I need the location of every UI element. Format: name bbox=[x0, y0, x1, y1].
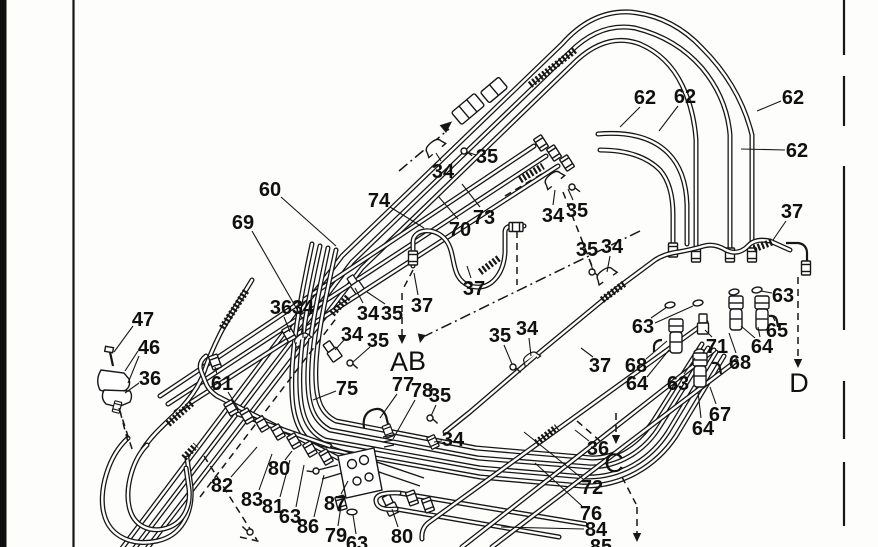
leader-line-60 bbox=[281, 197, 336, 246]
leader-line-47 bbox=[114, 326, 133, 352]
callout-47: 47 bbox=[132, 309, 154, 331]
callout-34: 34 bbox=[516, 318, 539, 340]
callout-69: 69 bbox=[232, 212, 254, 234]
callout-62: 62 bbox=[782, 87, 804, 109]
callout-68: 68 bbox=[729, 352, 751, 374]
callout-34: 34 bbox=[601, 236, 624, 258]
section-letter-C: C bbox=[604, 448, 624, 478]
callout-37: 37 bbox=[781, 201, 803, 223]
callout-34: 34 bbox=[292, 297, 315, 319]
callout-72: 72 bbox=[581, 477, 603, 499]
callout-62: 62 bbox=[786, 140, 808, 162]
parts-diagram-page: 6069747073343534356262626237363434353737… bbox=[0, 0, 878, 547]
callout-35: 35 bbox=[489, 325, 511, 347]
section-letter-D: D bbox=[789, 368, 809, 398]
callout-73: 73 bbox=[473, 207, 495, 229]
callout-70: 70 bbox=[449, 219, 471, 241]
callout-80: 80 bbox=[391, 526, 413, 547]
callout-37: 37 bbox=[411, 295, 433, 317]
callout-63: 63 bbox=[667, 373, 689, 395]
leader-line-62 bbox=[620, 107, 640, 127]
callout-83: 83 bbox=[241, 489, 263, 511]
leader-line-63 bbox=[296, 465, 304, 507]
callout-63: 63 bbox=[772, 285, 794, 307]
callout-80: 80 bbox=[268, 458, 290, 480]
leader-line-77 bbox=[380, 394, 397, 418]
leader-line-34 bbox=[553, 190, 555, 205]
section-letter-A: A bbox=[390, 347, 408, 377]
hose-coupling bbox=[200, 50, 592, 497]
leader-line-67 bbox=[710, 387, 716, 404]
section-letter-B: B bbox=[408, 346, 426, 376]
callout-86: 86 bbox=[297, 516, 319, 538]
callout-74: 74 bbox=[368, 190, 391, 212]
callout-46: 46 bbox=[138, 337, 160, 359]
callout-34: 34 bbox=[341, 324, 364, 346]
leader-line-62 bbox=[741, 149, 785, 150]
callout-34: 34 bbox=[357, 303, 380, 325]
leader-line-63 bbox=[353, 515, 356, 534]
callout-35: 35 bbox=[367, 330, 389, 352]
callout-64: 64 bbox=[692, 418, 715, 440]
callout-79: 79 bbox=[325, 525, 347, 547]
callout-35: 35 bbox=[576, 239, 598, 261]
callout-35: 35 bbox=[381, 303, 403, 325]
parts-diagram: 6069747073343534356262626237363434353737… bbox=[0, 0, 878, 547]
callout-63: 63 bbox=[346, 533, 368, 547]
callout-36: 36 bbox=[270, 297, 292, 319]
callout-71: 71 bbox=[706, 336, 728, 358]
callout-37: 37 bbox=[589, 355, 611, 377]
callout-65: 65 bbox=[766, 320, 788, 342]
callout-75: 75 bbox=[336, 378, 358, 400]
leader-line-68 bbox=[729, 333, 736, 353]
leader-line-37 bbox=[414, 273, 418, 295]
leader-line-62 bbox=[757, 101, 781, 111]
callout-85: 85 bbox=[590, 536, 612, 547]
callout-34: 34 bbox=[542, 205, 565, 227]
callout-63: 63 bbox=[632, 316, 654, 338]
leader-line-37 bbox=[773, 221, 786, 240]
callout-87: 87 bbox=[324, 493, 346, 515]
callout-34: 34 bbox=[442, 429, 465, 451]
leader-line-46 bbox=[125, 351, 138, 371]
callout-36: 36 bbox=[139, 368, 161, 390]
callout-35: 35 bbox=[566, 200, 588, 222]
leader-line-35 bbox=[504, 345, 512, 364]
callout-61: 61 bbox=[211, 373, 233, 395]
leader-line-62 bbox=[659, 106, 678, 131]
leader-line-63 bbox=[761, 291, 772, 293]
callout-35: 35 bbox=[429, 385, 451, 407]
callout-60: 60 bbox=[259, 179, 281, 201]
leader-line-82 bbox=[231, 447, 257, 477]
callout-37: 37 bbox=[463, 278, 485, 300]
callout-62: 62 bbox=[634, 87, 656, 109]
callout-35: 35 bbox=[476, 146, 498, 168]
leader-line-37 bbox=[467, 266, 471, 278]
callout-82: 82 bbox=[211, 475, 233, 497]
leader-line-46 bbox=[128, 356, 139, 383]
callout-34: 34 bbox=[432, 161, 455, 183]
callout-62: 62 bbox=[674, 86, 696, 108]
leader-line-86 bbox=[314, 475, 324, 517]
callout-64: 64 bbox=[626, 373, 649, 395]
